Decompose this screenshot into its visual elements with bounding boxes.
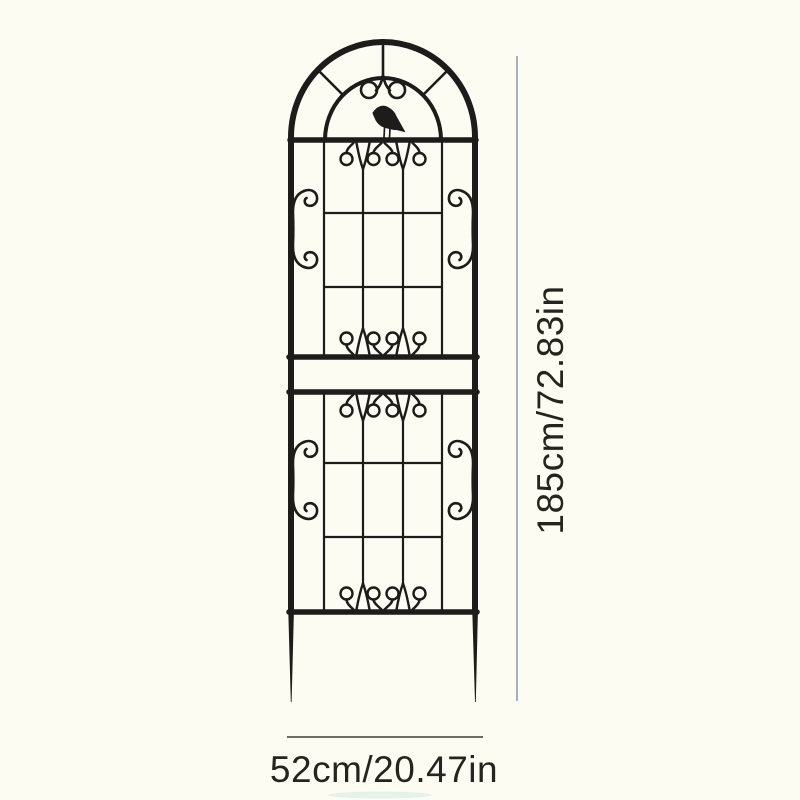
height-dimension-label: 185cm/72.83in [530, 285, 572, 534]
lower-top-cresting [341, 395, 426, 421]
product-dimension-image: 185cm/72.83in 52cm/20.47in [0, 0, 800, 800]
lower-left-scroll [293, 441, 317, 519]
arch-spokes [318, 42, 448, 94]
upper-panel-horizontals [324, 213, 442, 287]
width-dimension-label: 52cm/20.47in [270, 749, 498, 791]
upper-right-scroll [449, 190, 473, 268]
upper-top-cresting [341, 143, 426, 169]
horizontal-rails [289, 140, 477, 612]
trellis-frame [291, 42, 475, 612]
upper-panel-verticals [324, 140, 442, 357]
lower-panel [293, 394, 473, 612]
upper-left-scroll [293, 190, 317, 268]
lower-panel-horizontals [324, 463, 442, 537]
left-stake [288, 612, 294, 702]
lower-right-scroll [449, 441, 473, 519]
trellis-illustration [0, 0, 800, 800]
upper-bottom-cresting [341, 329, 426, 355]
trellis [288, 42, 478, 702]
lower-panel-verticals [324, 394, 442, 612]
lower-bottom-cresting [341, 584, 426, 610]
outer-arch [291, 42, 475, 612]
right-stake [472, 612, 478, 702]
bird-icon [373, 106, 405, 137]
upper-panel [293, 140, 473, 357]
ground-stakes [288, 612, 478, 702]
ground-shadow [328, 792, 432, 799]
